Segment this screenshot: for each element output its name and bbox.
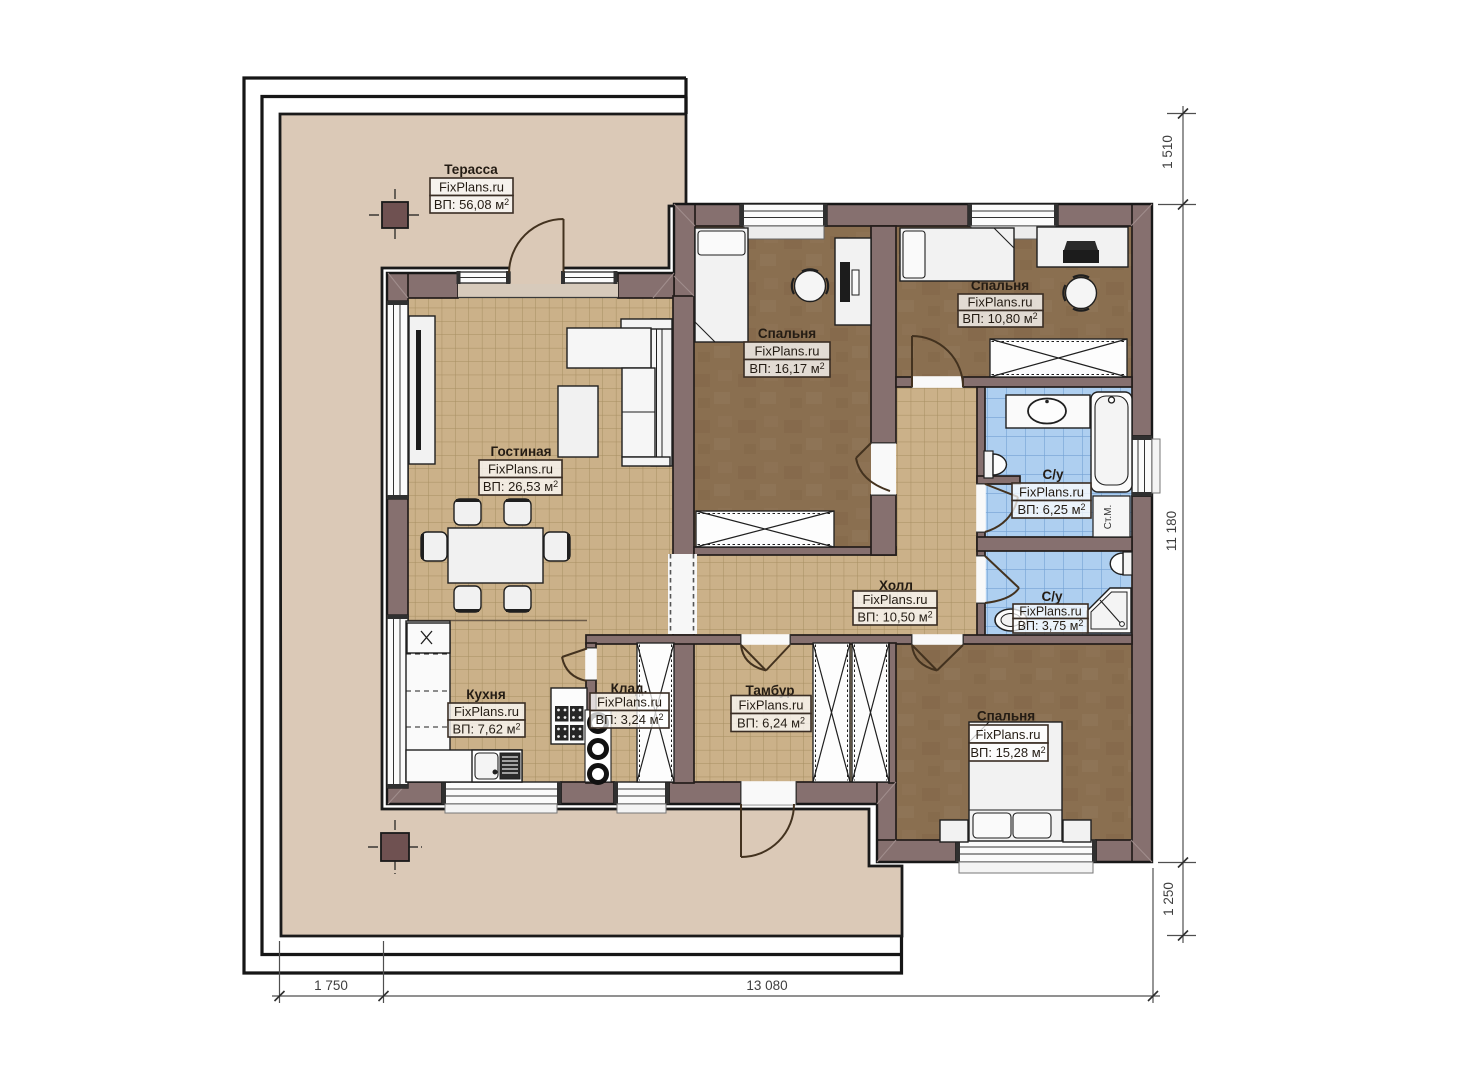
svg-text:ВП: 16,17 м2: ВП: 16,17 м2 xyxy=(749,361,824,376)
svg-text:FixPlans.ru: FixPlans.ru xyxy=(967,295,1032,310)
svg-text:13 080: 13 080 xyxy=(746,978,787,993)
svg-text:1 510: 1 510 xyxy=(1160,135,1175,169)
svg-text:ВП: 56,08 м2: ВП: 56,08 м2 xyxy=(434,197,509,212)
svg-text:FixPlans.ru: FixPlans.ru xyxy=(597,695,662,710)
svg-text:ВП: 6,25 м2: ВП: 6,25 м2 xyxy=(1017,502,1085,517)
svg-text:ВП: 6,24 м2: ВП: 6,24 м2 xyxy=(737,716,805,731)
svg-text:ВП: 3,75 м2: ВП: 3,75 м2 xyxy=(1018,618,1084,633)
svg-text:1 750: 1 750 xyxy=(314,978,348,993)
svg-text:Спальня: Спальня xyxy=(977,709,1035,724)
svg-text:FixPlans.ru: FixPlans.ru xyxy=(754,344,819,359)
svg-text:FixPlans.ru: FixPlans.ru xyxy=(454,704,519,719)
svg-text:Гостиная: Гостиная xyxy=(490,444,551,459)
svg-text:ВП: 10,80 м2: ВП: 10,80 м2 xyxy=(962,311,1037,326)
svg-text:FixPlans.ru: FixPlans.ru xyxy=(975,727,1040,742)
svg-text:1 250: 1 250 xyxy=(1161,882,1176,916)
svg-text:Ст.М.: Ст.М. xyxy=(1103,505,1114,530)
svg-text:FixPlans.ru: FixPlans.ru xyxy=(439,180,504,195)
svg-text:ВП: 3,24 м2: ВП: 3,24 м2 xyxy=(595,712,663,727)
svg-text:FixPlans.ru: FixPlans.ru xyxy=(488,462,553,477)
svg-text:С/у: С/у xyxy=(1041,589,1063,604)
svg-text:Спальня: Спальня xyxy=(971,278,1029,293)
svg-text:ВП: 15,28 м2: ВП: 15,28 м2 xyxy=(970,745,1045,760)
svg-text:ВП: 10,50 м2: ВП: 10,50 м2 xyxy=(857,610,932,625)
svg-text:ВП: 7,62 м2: ВП: 7,62 м2 xyxy=(452,722,520,737)
svg-text:С/у: С/у xyxy=(1042,467,1064,482)
svg-text:FixPlans.ru: FixPlans.ru xyxy=(738,698,803,713)
svg-text:11 180: 11 180 xyxy=(1164,511,1179,551)
svg-text:Спальня: Спальня xyxy=(758,326,816,341)
svg-text:FixPlans.ru: FixPlans.ru xyxy=(1019,485,1084,500)
svg-text:ВП: 26,53 м2: ВП: 26,53 м2 xyxy=(483,479,558,494)
svg-text:Кухня: Кухня xyxy=(466,687,505,702)
svg-text:FixPlans.ru: FixPlans.ru xyxy=(1019,605,1082,619)
svg-text:Терасса: Терасса xyxy=(444,162,498,177)
svg-text:FixPlans.ru: FixPlans.ru xyxy=(862,592,927,607)
